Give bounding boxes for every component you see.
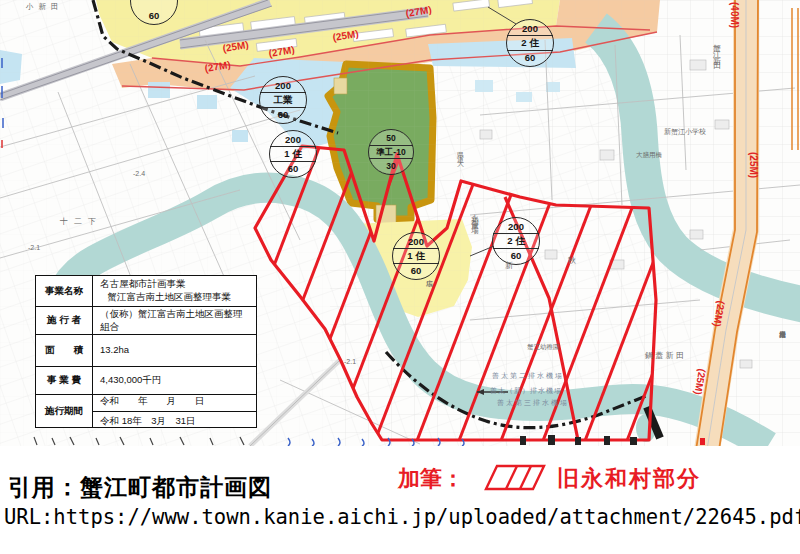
- road-width-label: (40M): [729, 2, 739, 28]
- zone-circle-res2-east: 200 2 住 60: [492, 217, 540, 265]
- zone-circle-res1-west: 200 1 住 60: [269, 130, 317, 178]
- elevation-label: -2.1: [28, 244, 40, 251]
- place-label: 鍋 蓋 新 田: [645, 352, 684, 360]
- table-header: 面 積: [36, 335, 93, 366]
- place-label: 秋: [568, 257, 576, 265]
- place-label: 十二下: [60, 218, 102, 226]
- city-planning-map: 200 工業 60 200 1 住 60 200 2 住 60 200 2 住 …: [0, 0, 800, 446]
- citation-text: 引用：蟹江町都市計画図: [8, 472, 272, 503]
- caption-area: 加筆： 旧永和村部分 引用：蟹江町都市計画図 URL:https://www.t…: [0, 446, 800, 554]
- place-label: 大膳用橋: [636, 152, 662, 159]
- table-value: 令和 18年 3月 31日: [93, 411, 256, 431]
- screenshot: 200 工業 60 200 1 住 60 200 2 住 60 200 2 住 …: [0, 0, 800, 554]
- elevation-label: -2.1: [344, 358, 356, 365]
- place-label: 善太（新）排水機場: [490, 387, 562, 394]
- legend-description: 旧永和村部分: [557, 464, 701, 494]
- place-label: 蟹江新田: [712, 38, 720, 62]
- road-width-label: (25M): [748, 152, 758, 178]
- table-value: 13.2ha: [100, 344, 249, 357]
- table-header: 施 行 者: [36, 307, 93, 334]
- zone-circle-industrial: 200 工業 60: [259, 76, 307, 124]
- place-label: 蟹江幼稚園: [527, 344, 560, 351]
- table-value: （仮称）蟹江富吉南土地区画整理組合: [100, 308, 249, 334]
- zone-circle-res1-south: 200 1 住 60: [392, 232, 440, 280]
- table-value: 名古屋都市計画事業: [100, 278, 249, 291]
- place-label: 新蟹江小学校: [664, 128, 706, 135]
- table-header: 施行期間: [36, 395, 93, 427]
- source-url-text: URL:https://www.town.kanie.aichi.jp/uplo…: [4, 505, 800, 529]
- hatch-legend-symbol: [476, 463, 550, 492]
- place-label: 善太第二排水機場: [492, 372, 564, 379]
- table-value: 令和 年 月 日: [93, 392, 256, 411]
- zone-circle-partial-top: . . 60: [130, 0, 178, 25]
- place-label: 新: [505, 262, 513, 270]
- project-info-table: 事業名称 名古屋都市計画事業 蟹江富吉南土地区画整理事業 施 行 者 （仮称）蟹…: [35, 275, 257, 428]
- place-label: 県道大: [457, 146, 464, 158]
- place-label: 小新田: [26, 3, 64, 11]
- table-header: 事 業 費: [36, 367, 93, 394]
- place-label: 善太第三排水機場: [497, 399, 569, 406]
- place-label: 永和停車場: [471, 208, 479, 223]
- zone-circle-res2-north: 200 2 住 60: [506, 19, 554, 67]
- table-value: 4,430,000千円: [100, 374, 249, 387]
- table-value: 蟹江富吉南土地区画整理事業: [100, 291, 249, 304]
- zone-circle-district-green: 50 準工-10 30: [368, 129, 414, 175]
- elevation-label: -2.4: [133, 170, 145, 177]
- legend-label: 加筆：: [398, 464, 464, 494]
- table-header: 事業名称: [36, 276, 93, 306]
